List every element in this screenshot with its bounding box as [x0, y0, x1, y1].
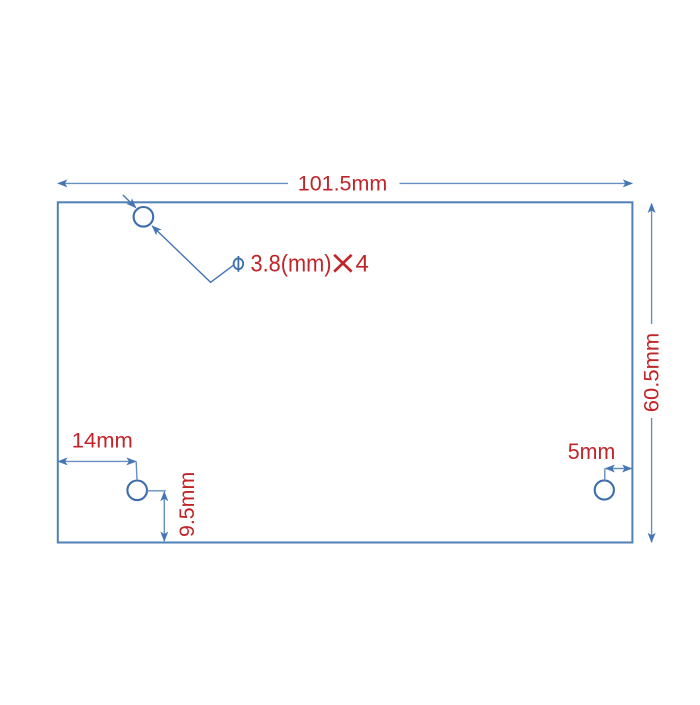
- svg-text:9.5mm: 9.5mm: [176, 472, 199, 537]
- svg-text:4: 4: [356, 250, 369, 277]
- svg-text:3.8(mm): 3.8(mm): [251, 250, 332, 277]
- svg-text:14mm: 14mm: [72, 430, 133, 453]
- svg-text:60.5mm: 60.5mm: [641, 333, 664, 413]
- svg-text:101.5mm: 101.5mm: [298, 171, 388, 195]
- svg-text:5mm: 5mm: [568, 439, 616, 464]
